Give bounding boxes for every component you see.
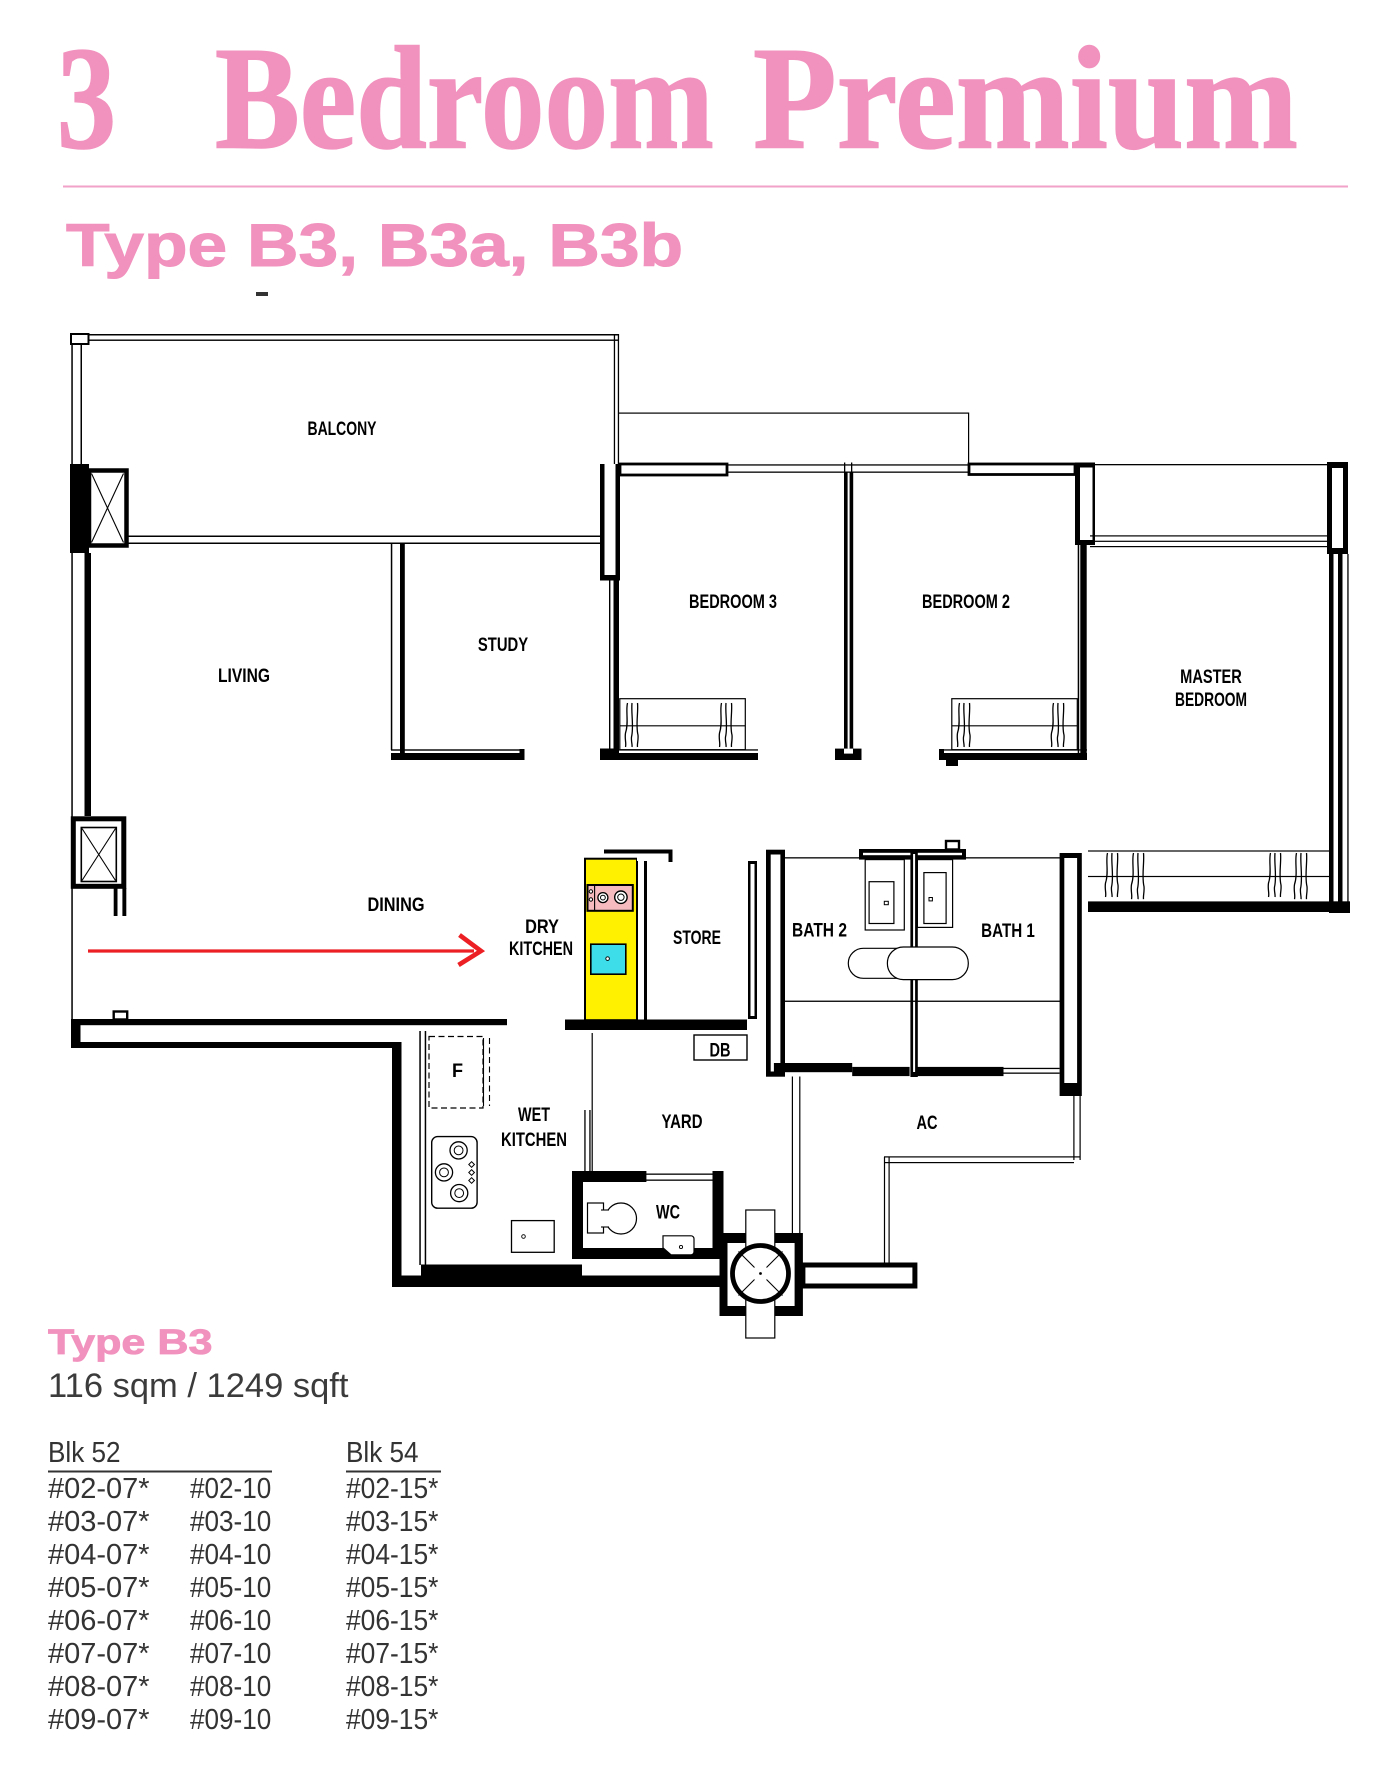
svg-text:#04-15*: #04-15* bbox=[346, 1538, 439, 1570]
svg-text:#04-10: #04-10 bbox=[190, 1538, 271, 1571]
svg-text:Blk 54: Blk 54 bbox=[346, 1436, 419, 1469]
svg-text:#07-07*: #07-07* bbox=[48, 1638, 150, 1670]
svg-text:Type B3: Type B3 bbox=[48, 1323, 212, 1362]
svg-text:#08-15*: #08-15* bbox=[346, 1670, 439, 1702]
svg-text:YARD: YARD bbox=[662, 1111, 703, 1132]
svg-text:WET: WET bbox=[518, 1104, 551, 1125]
svg-text:#02-15*: #02-15* bbox=[346, 1472, 439, 1504]
svg-text:#03-15*: #03-15* bbox=[346, 1505, 439, 1537]
svg-text:#09-10: #09-10 bbox=[190, 1703, 271, 1736]
svg-text:116 sqm / 1249 sqft: 116 sqm / 1249 sqft bbox=[48, 1367, 349, 1405]
svg-text:BEDROOM 2: BEDROOM 2 bbox=[922, 591, 1010, 612]
svg-text:WC: WC bbox=[656, 1202, 680, 1223]
svg-text:DRY: DRY bbox=[525, 916, 559, 937]
svg-text:KITCHEN: KITCHEN bbox=[509, 938, 573, 959]
svg-text:#03-10: #03-10 bbox=[190, 1505, 271, 1538]
svg-text:LIVING: LIVING bbox=[218, 665, 270, 687]
svg-text:#04-07*: #04-07* bbox=[48, 1539, 150, 1571]
svg-text:#06-15*: #06-15* bbox=[346, 1604, 439, 1636]
svg-text:#05-15*: #05-15* bbox=[346, 1571, 439, 1603]
svg-text:#07-15*: #07-15* bbox=[346, 1637, 439, 1669]
svg-text:#05-07*: #05-07* bbox=[48, 1572, 150, 1604]
svg-text:F: F bbox=[452, 1060, 463, 1082]
svg-text:#08-07*: #08-07* bbox=[48, 1671, 150, 1703]
svg-text:#09-15*: #09-15* bbox=[346, 1703, 439, 1735]
svg-text:#07-10: #07-10 bbox=[190, 1637, 271, 1670]
svg-text:KITCHEN: KITCHEN bbox=[501, 1129, 567, 1150]
svg-text:BEDROOM: BEDROOM bbox=[1175, 689, 1247, 711]
svg-text:#05-10: #05-10 bbox=[190, 1571, 271, 1604]
svg-text:#09-07*: #09-07* bbox=[48, 1704, 150, 1736]
svg-text:DB: DB bbox=[709, 1040, 730, 1061]
svg-text:Blk 52: Blk 52 bbox=[48, 1436, 121, 1469]
svg-text:DINING: DINING bbox=[368, 894, 425, 915]
svg-text:Type B3, B3a, B3b: Type B3, B3a, B3b bbox=[66, 211, 683, 278]
svg-text:MASTER: MASTER bbox=[1180, 666, 1242, 687]
svg-text:#02-10: #02-10 bbox=[190, 1472, 271, 1505]
svg-text:STORE: STORE bbox=[673, 927, 721, 949]
svg-text:BATH 1: BATH 1 bbox=[981, 919, 1035, 941]
svg-text:#03-07*: #03-07* bbox=[48, 1506, 150, 1538]
svg-text:Bedroom: Bedroom bbox=[215, 17, 714, 180]
svg-text:BALCONY: BALCONY bbox=[308, 418, 377, 440]
svg-text:STUDY: STUDY bbox=[478, 634, 529, 655]
svg-text:#06-07*: #06-07* bbox=[48, 1605, 150, 1637]
svg-text:BATH 2: BATH 2 bbox=[792, 919, 847, 941]
svg-text:#02-07*: #02-07* bbox=[48, 1473, 150, 1505]
svg-text:#06-10: #06-10 bbox=[190, 1604, 271, 1637]
svg-text:3: 3 bbox=[57, 16, 116, 179]
svg-text:AC: AC bbox=[916, 1112, 937, 1133]
svg-text:Premium: Premium bbox=[753, 16, 1298, 180]
svg-text:#08-10: #08-10 bbox=[190, 1670, 271, 1703]
svg-text:BEDROOM 3: BEDROOM 3 bbox=[689, 591, 777, 612]
